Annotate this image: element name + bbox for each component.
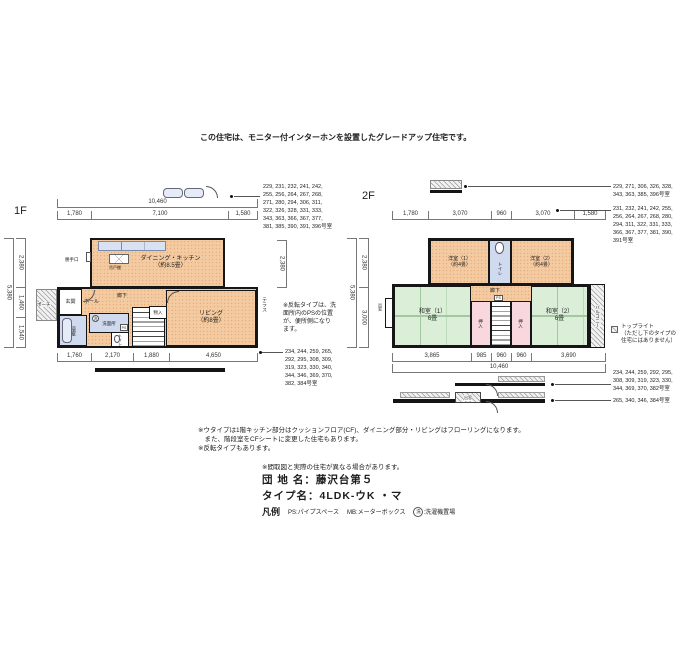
legend-row: 凡例 PS:パイプスペース MB:メーターボックス 洗 :洗濯機置場 xyxy=(262,505,455,518)
back-door-label: 勝手口 xyxy=(65,257,79,262)
footer-note-difference: ※間取図と実際の住宅が異なる場合があります。 xyxy=(262,461,403,471)
type-name: タイプ名：4LDK-ウK ・マ xyxy=(262,488,402,503)
room-list-2f-b: 231, 232, 241, 242, 255, 256, 264, 267, … xyxy=(613,205,698,245)
dim-value: 10,460 xyxy=(392,364,606,373)
dim-value: 2,170 xyxy=(91,353,133,362)
dim-value: 3,070 xyxy=(511,211,574,220)
room-toilet-2f-label: トイレ xyxy=(497,262,503,276)
dim-value: 2,380 xyxy=(279,256,285,271)
back-door xyxy=(86,252,91,262)
dim-value: 960 xyxy=(491,211,511,220)
room-living: リビング （約8畳） xyxy=(166,290,256,346)
room-list-1f-bottom: 234, 244, 259, 265, 292, 295, 308, 309, … xyxy=(285,348,365,388)
dim-value: 5,380 xyxy=(349,285,355,300)
bathtub xyxy=(62,318,72,343)
room-oshiire-right: 押入 xyxy=(511,301,531,346)
section-fixture-2f-top xyxy=(430,180,462,189)
toilet-bowl-1f xyxy=(114,335,120,343)
dim-1f-left-segments: 2,380 1,460 1,540 xyxy=(16,238,26,348)
dim-value: 3,865 xyxy=(392,353,471,362)
section2-bay-window-label: 出窓 xyxy=(464,395,472,401)
room-western1: 洋室（1） （約4畳） xyxy=(430,240,489,284)
dim-2f-bottom-segments: 3,865 985 960 960 3,690 xyxy=(392,353,606,362)
room-list-2f-a: 229, 271, 306, 326, 328, 343, 363, 385, … xyxy=(613,183,698,199)
dim-value: 3,000 xyxy=(361,310,367,325)
dim-value: 2,380 xyxy=(18,255,24,270)
leader-line-2f-d xyxy=(555,400,611,401)
room-corridor-label: 廊下 xyxy=(117,293,127,299)
legend-mb: MB:メーターボックス xyxy=(347,507,406,516)
room-closet-1f-label: 物入 xyxy=(154,310,163,315)
dim-value: 1,780 xyxy=(392,211,428,220)
room-oshiire-right-label: 押入 xyxy=(519,319,524,328)
room-entrance-label: 玄関 xyxy=(65,299,75,305)
washing-machine-symbol: 洗 xyxy=(92,315,99,322)
floor2-plan: 洋室（1） （約4畳） トイレ 洋室（2） （約4畳） 和室（1） 6畳 廊下 … xyxy=(392,238,606,348)
toplight-icon xyxy=(611,326,618,333)
legend-ps: PS:パイプスペース xyxy=(288,507,339,516)
dim-1f-left-total: 5,380 xyxy=(4,238,14,348)
dim-value: 1,580 xyxy=(228,211,258,220)
section-fixture-1f-b xyxy=(184,188,202,196)
room-japanese2-label: 和室（2） 6畳 xyxy=(546,309,573,323)
floor1-label: 1F xyxy=(14,205,27,217)
floor1-plan: ダイニング・キッチン （約8.5畳） 吊戸棚 勝手口 玄関 ホール 廊下 洗面所… xyxy=(57,238,258,348)
pipe-space-box-1f: PS xyxy=(120,324,128,331)
section1-roof xyxy=(498,376,545,382)
leader-dot-1f-list xyxy=(230,195,233,198)
dim-value: 985 xyxy=(471,353,491,362)
leader-line-1f-list xyxy=(234,196,260,197)
hanging-cupboard-box xyxy=(109,254,129,264)
legend-title: 凡例 xyxy=(262,505,280,518)
leader-line-2f-c xyxy=(555,384,611,385)
section1-wall xyxy=(455,383,545,386)
room-living-label: リビング （約8畳） xyxy=(197,311,224,325)
hanging-cupboard-label: 吊戸棚 xyxy=(109,265,121,271)
leader-dot-2f-c xyxy=(551,383,554,386)
estate-name: 団 地 名：藤沢台第５ xyxy=(262,472,373,487)
dim-value: 3,070 xyxy=(428,211,491,220)
dim-2f-bottom-total: 10,460 xyxy=(392,364,606,373)
corridor-2f-label: 廊下 xyxy=(490,288,500,294)
dim-value: 2,380 xyxy=(361,255,367,270)
bay-window-2f-label: 出窓 xyxy=(377,303,383,311)
room-western2: 洋室（2） （約4畳） xyxy=(511,240,572,284)
porch-label: ポーチ xyxy=(37,302,51,307)
room-closet-1f: 物入 xyxy=(149,306,167,319)
dim-2f-left-total: 5,380 xyxy=(347,238,357,348)
footer-note-utype: ※ウタイプは1階キッチン部分はクッションフロア(CF)、ダイニング部分・リビング… xyxy=(198,426,525,453)
room-entrance: 玄関 xyxy=(59,289,82,315)
leader-dot-2f-a xyxy=(464,185,467,188)
section-fixture-1f-a xyxy=(163,188,181,196)
section2-door-arc xyxy=(486,401,498,413)
dim-value: 1,780 xyxy=(57,211,91,220)
dim-value: 5,380 xyxy=(6,285,12,300)
section2-roof-right xyxy=(498,392,545,398)
staircase-2f xyxy=(491,301,511,346)
toplight-note: トップライト （ただし下のタイプの 住宅にはありません） xyxy=(621,324,699,345)
legend-laundry-text: :洗濯機置場 xyxy=(423,507,455,516)
section2-bay-window: 出窓 xyxy=(455,392,481,403)
floor-plan-sheet: この住宅は、モニター付インターホンを設置したグレードアップ住宅です。 1F 10… xyxy=(0,0,700,650)
dim-1f-top-segments: 1,780 7,100 1,580 xyxy=(57,211,258,220)
dim-1f-bottom-segments: 1,760 2,170 1,880 4,650 xyxy=(57,353,258,362)
room-western1-label: 洋室（1） （約4畳） xyxy=(448,256,471,268)
dim-2f-left-segments: 2,380 3,000 xyxy=(359,238,369,348)
room-washroom-label: 洗面所 xyxy=(102,321,116,326)
dim-value: 1,880 xyxy=(133,353,169,362)
dim-value: 3,690 xyxy=(531,353,606,362)
room-list-1f: 229, 231, 232, 241, 242, 255, 256, 264, … xyxy=(263,183,355,231)
dim-value: 1,460 xyxy=(18,295,24,310)
site-boundary-bar-1f xyxy=(95,368,225,372)
dim-value: 4,650 xyxy=(169,353,258,362)
leader-dot-2f-d xyxy=(551,399,554,402)
room-western2-label: 洋室（2） （約4畳） xyxy=(530,256,553,268)
legend-laundry: 洗 :洗濯機置場 xyxy=(413,507,455,517)
dim-value: 1,580 xyxy=(574,211,606,220)
balcony-area: バルコニー xyxy=(590,284,605,348)
dim-1f-top-total: 10,460 xyxy=(57,199,258,208)
dim-value: 1,760 xyxy=(57,353,91,362)
dim-value: 7,100 xyxy=(91,211,228,220)
bay-window-2f xyxy=(385,298,393,328)
balcony-label: バルコニー xyxy=(595,305,601,328)
leader-line-1f-bottom xyxy=(262,352,283,353)
dim-value: 10,460 xyxy=(57,199,258,208)
dim-2f-top-segments: 1,780 3,070 960 3,070 1,580 xyxy=(392,211,606,220)
dim-1f-right: 2,380 xyxy=(277,240,287,288)
dim-value: 960 xyxy=(491,353,511,362)
header-note: この住宅は、モニター付インターホンを設置したグレードアップ住宅です。 xyxy=(200,132,471,143)
section-door-arc-1f xyxy=(206,186,218,198)
floor2-label: 2F xyxy=(362,190,375,202)
section-wall-2f-top xyxy=(430,190,462,193)
note-reverse-type: ※反転タイプは、洗 面所内のPSの位置 が、便所側になり ます。 xyxy=(283,302,357,334)
laundry-circle-icon: 洗 xyxy=(413,507,423,517)
room-japanese2: 和室（2） 6畳 xyxy=(531,286,588,346)
dim-value: 1,540 xyxy=(18,325,24,340)
leader-line-2f-a xyxy=(468,186,611,187)
kitchen-counter xyxy=(98,241,166,251)
dim-value: 960 xyxy=(511,353,531,362)
room-oshiire-left-label: 押入 xyxy=(479,319,484,328)
room-list-2f-d: 265, 340, 346, 384号室 xyxy=(613,397,698,405)
room-japanese1: 和室（1） 6畳 xyxy=(394,286,471,346)
toilet-bowl-2f xyxy=(495,242,504,254)
section2-roof-left xyxy=(400,392,450,398)
room-japanese1-label: 和室（1） 6畳 xyxy=(419,309,446,323)
room-oshiire-left: 押入 xyxy=(471,301,491,346)
terrace-label: テラス xyxy=(261,297,267,312)
room-dining-kitchen-label: ダイニング・キッチン （約8.5畳） xyxy=(140,256,200,270)
room-list-2f-c: 234, 244, 259, 292, 295, 308, 309, 319, … xyxy=(613,369,698,393)
